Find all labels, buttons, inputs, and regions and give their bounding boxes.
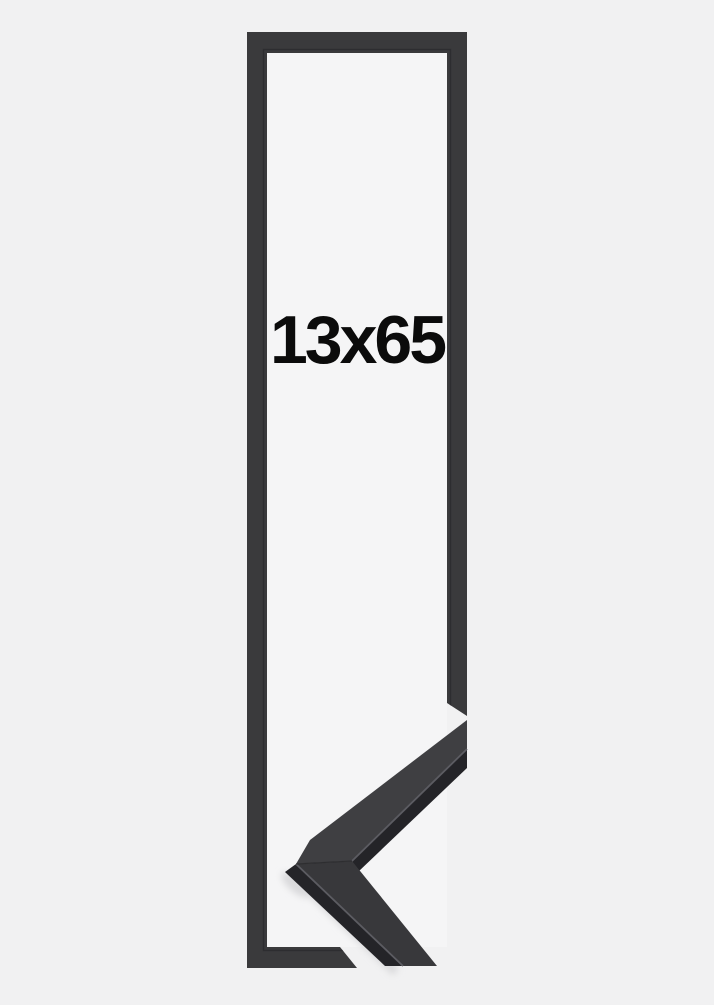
page-background: { "page": { "background_color": "#f1f1f2…	[0, 0, 714, 1000]
product-image: 13x65	[0, 0, 714, 1000]
size-label: 13x65	[270, 302, 445, 378]
frame-product-graphic: 13x65	[0, 0, 714, 1000]
